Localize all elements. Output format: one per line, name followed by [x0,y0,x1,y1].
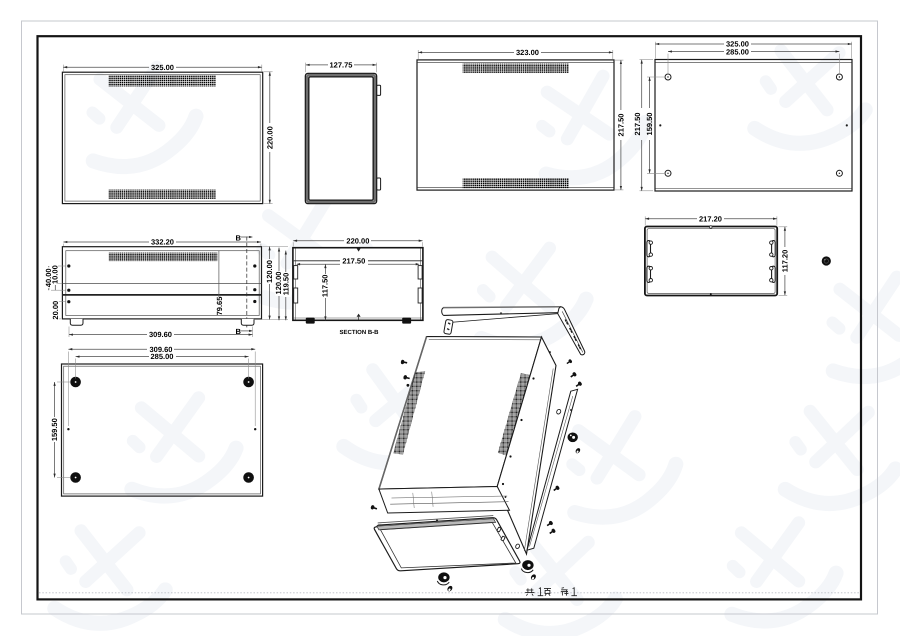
svg-text:285.00: 285.00 [726,47,749,56]
svg-text:220.00: 220.00 [265,126,274,149]
svg-text:159.50: 159.50 [645,113,654,136]
svg-text:10.00: 10.00 [50,265,59,284]
svg-text:120.00: 120.00 [265,260,274,283]
svg-text:217.50: 217.50 [616,114,625,137]
svg-text:309.60: 309.60 [149,330,172,339]
svg-text:119.50: 119.50 [281,273,290,296]
svg-text:117.50: 117.50 [321,275,330,298]
svg-text:79.65: 79.65 [215,297,224,316]
svg-text:20.00: 20.00 [51,301,60,320]
svg-text:159.50: 159.50 [50,418,59,441]
svg-text:SECTION B-B: SECTION B-B [340,329,380,336]
svg-text:217.20: 217.20 [699,214,722,223]
svg-text:323.00: 323.00 [516,48,539,57]
svg-text:127.75: 127.75 [330,61,353,70]
svg-text:217.50: 217.50 [342,257,365,266]
svg-text:332.20: 332.20 [151,238,174,247]
svg-text:B: B [236,234,242,243]
svg-text:217.50: 217.50 [633,113,642,136]
svg-text:325.00: 325.00 [151,63,174,72]
svg-text:285.00: 285.00 [151,352,174,361]
svg-text:220.00: 220.00 [346,236,369,245]
svg-text:117.20: 117.20 [780,250,789,273]
